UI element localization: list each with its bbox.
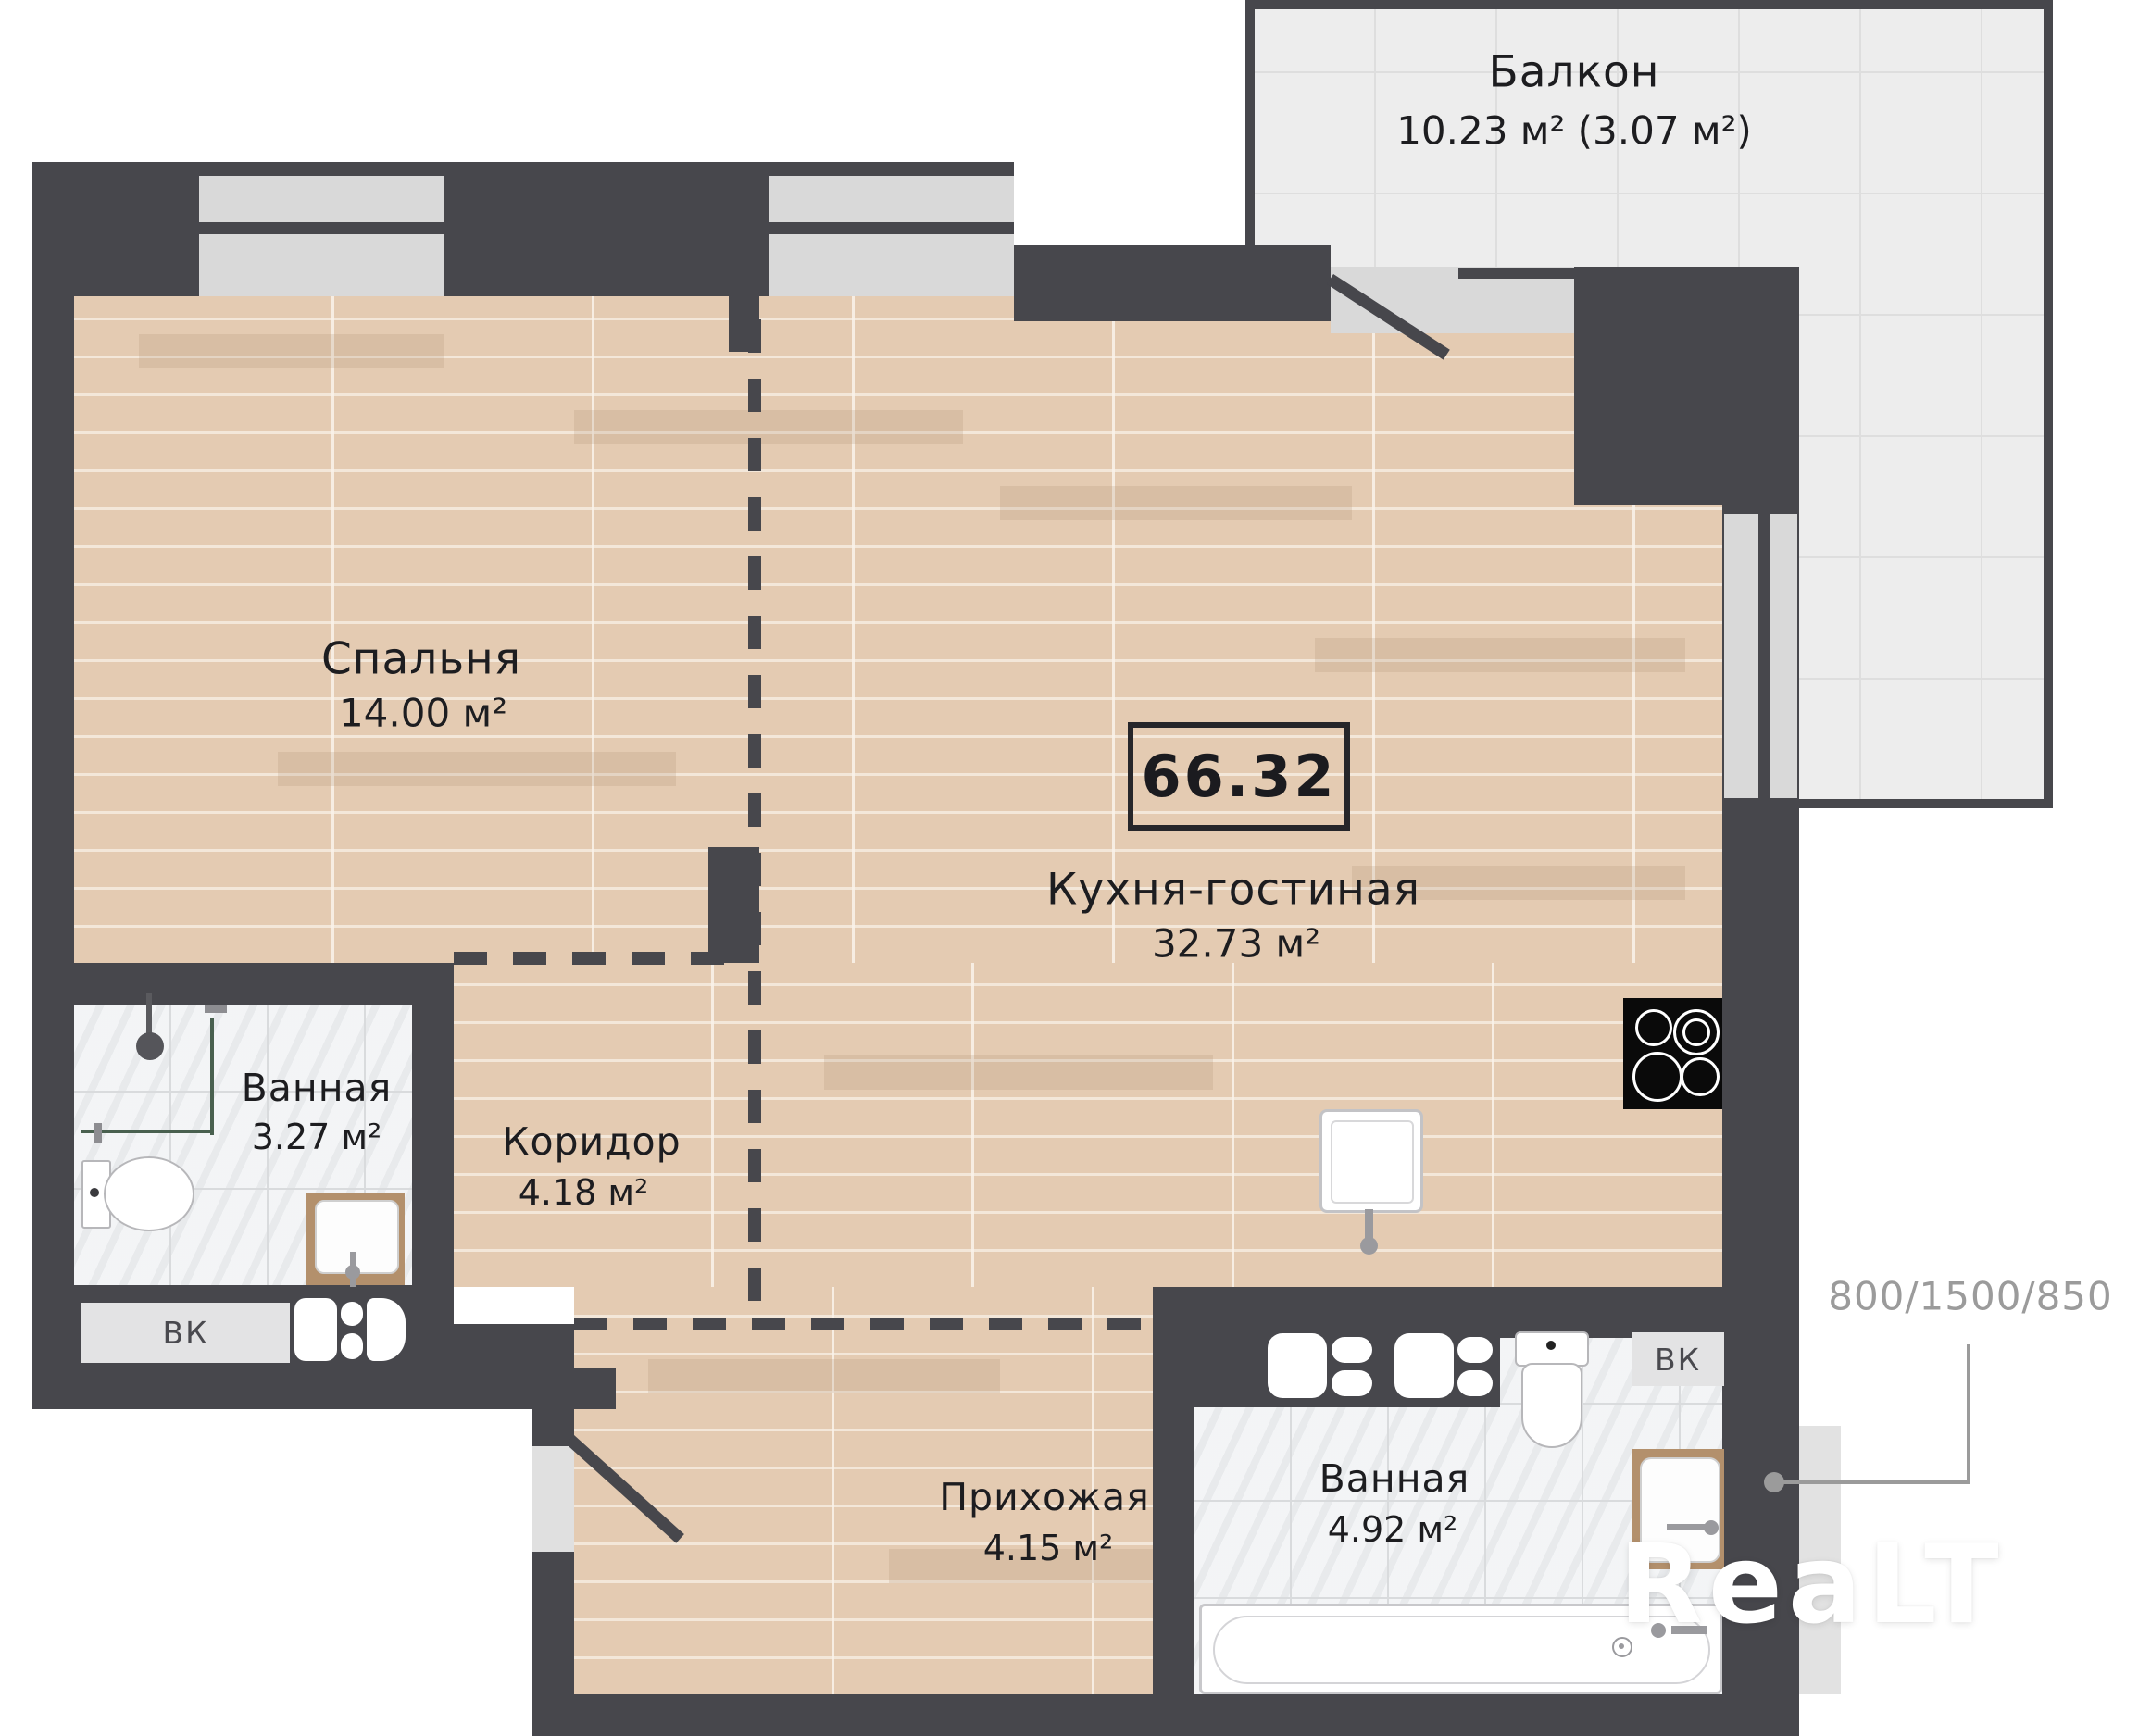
- leader-dot: [1764, 1472, 1784, 1492]
- plank-shade: [278, 752, 676, 786]
- toilet-button-icon: [1546, 1341, 1556, 1350]
- wall-left: [32, 162, 74, 1409]
- balcony-door-panel: [1458, 268, 1574, 279]
- toilet-bowl-icon: [104, 1156, 194, 1231]
- window-top-1: [199, 176, 444, 296]
- window-frame-line: [769, 222, 1014, 234]
- balcony-name: Балкон: [1489, 47, 1660, 98]
- washing-machine-icon: [1268, 1333, 1327, 1398]
- wall-bathroom-big-left: [1153, 1287, 1194, 1736]
- bedroom-name: Спальня: [321, 634, 521, 685]
- plank-shade: [1315, 638, 1685, 672]
- entry-door-threshold: [532, 1446, 574, 1552]
- vent-shaft-left: ВК: [81, 1303, 290, 1363]
- wall-stub-mid: [708, 847, 759, 963]
- washer-vent-icon: [1332, 1337, 1372, 1363]
- total-area-value: 66.32: [1141, 743, 1336, 810]
- vent-shaft-right-label: ВК: [1655, 1342, 1701, 1378]
- corridor-area: 4.18 м²: [519, 1172, 649, 1213]
- shower-head-icon: [136, 1032, 164, 1060]
- dashed-partition-bedroom-corridor: [454, 952, 748, 965]
- kitchen-sink-icon: [1319, 1109, 1423, 1213]
- hallway-name: Прихожая: [939, 1475, 1150, 1519]
- shower-valve-icon: [205, 1005, 227, 1013]
- toilet-bowl-icon: [1521, 1363, 1582, 1448]
- total-area-box: 66.32: [1128, 722, 1350, 831]
- faucet-knob-icon: [345, 1265, 360, 1280]
- shower-glass-vertical: [210, 1018, 214, 1135]
- kitchen-sink-basin: [1331, 1120, 1414, 1204]
- plank-shade: [1000, 486, 1352, 520]
- window-right: [1724, 514, 1797, 798]
- wall-bathroom-small-right: [412, 1005, 454, 1368]
- hallway-area: 4.15 м²: [983, 1528, 1114, 1568]
- vent-shaft-right: ВК: [1632, 1332, 1724, 1386]
- bathroom-big-area: 4.92 м²: [1328, 1509, 1458, 1550]
- dashed-partition-vertical: [748, 319, 761, 1324]
- window-top-2: [769, 176, 1014, 296]
- bathroom-small-name: Ванная: [242, 1066, 393, 1110]
- washer-vent-icon: [341, 1302, 363, 1326]
- wall-corridor-corner: [454, 1324, 574, 1368]
- washer-vent-icon: [1457, 1370, 1493, 1396]
- plank-shade: [574, 410, 963, 444]
- burner-icon: [1681, 1057, 1720, 1096]
- wall-top-right-step: [1014, 245, 1331, 321]
- burner-icon: [1632, 1052, 1682, 1102]
- washing-machine-icon: [1394, 1333, 1454, 1398]
- bedroom-area: 14.00 м²: [339, 691, 507, 736]
- washer-vent-icon: [1457, 1337, 1493, 1363]
- window-frame-line: [199, 222, 444, 234]
- leader-line-vertical: [1967, 1344, 1970, 1483]
- plank-shade: [648, 1359, 1000, 1393]
- wall-kitchen-balcony-corner: [1574, 267, 1799, 505]
- toilet-button-icon: [90, 1188, 99, 1197]
- dashed-partition-hallway: [574, 1318, 1153, 1330]
- wall-hallway-left-lower: [532, 1552, 574, 1694]
- bedroom-kitchen-floor: [74, 296, 1722, 963]
- leader-line-horizontal: [1774, 1480, 1970, 1484]
- wall-bathroom-small-top: [32, 963, 454, 1005]
- bathroom-small-area: 3.27 м²: [252, 1117, 382, 1157]
- vent-shaft-left-label: ВК: [162, 1315, 208, 1351]
- corridor-name: Коридор: [502, 1119, 681, 1164]
- kitchen-living-name: Кухня-гостиная: [1046, 865, 1420, 916]
- bathroom-big-name: Ванная: [1319, 1456, 1470, 1501]
- towel-bar-icon: [94, 1123, 102, 1143]
- balcony-area: 10.23 м² (3.07 м²): [1396, 108, 1752, 154]
- wall-bottom-left: [32, 1368, 616, 1409]
- wall-stub-top: [729, 296, 759, 352]
- dimension-note: 800/1500/850: [1828, 1274, 2113, 1319]
- burner-icon: [1635, 1009, 1672, 1046]
- stove-icon: [1623, 998, 1722, 1109]
- plank-shade: [824, 1055, 1213, 1090]
- kitchen-faucet-knob-icon: [1360, 1237, 1378, 1255]
- window-frame-line: [1758, 514, 1770, 798]
- sink-icon: [315, 1200, 399, 1274]
- realt-watermark: ReaLT: [1619, 1520, 2005, 1648]
- kitchen-living-area: 32.73 м²: [1152, 921, 1320, 967]
- washer-vent-icon: [1332, 1370, 1372, 1396]
- burner-inner-ring: [1682, 1018, 1710, 1046]
- floor-plan: Балкон 10.23 м² (3.07 м²): [0, 0, 2151, 1736]
- washing-machine-icon: [367, 1298, 406, 1361]
- washing-machine-icon: [294, 1298, 337, 1361]
- wall-bathroom-big-top: [1194, 1287, 1799, 1338]
- plank-shade: [139, 334, 444, 368]
- washer-vent-icon: [341, 1333, 363, 1359]
